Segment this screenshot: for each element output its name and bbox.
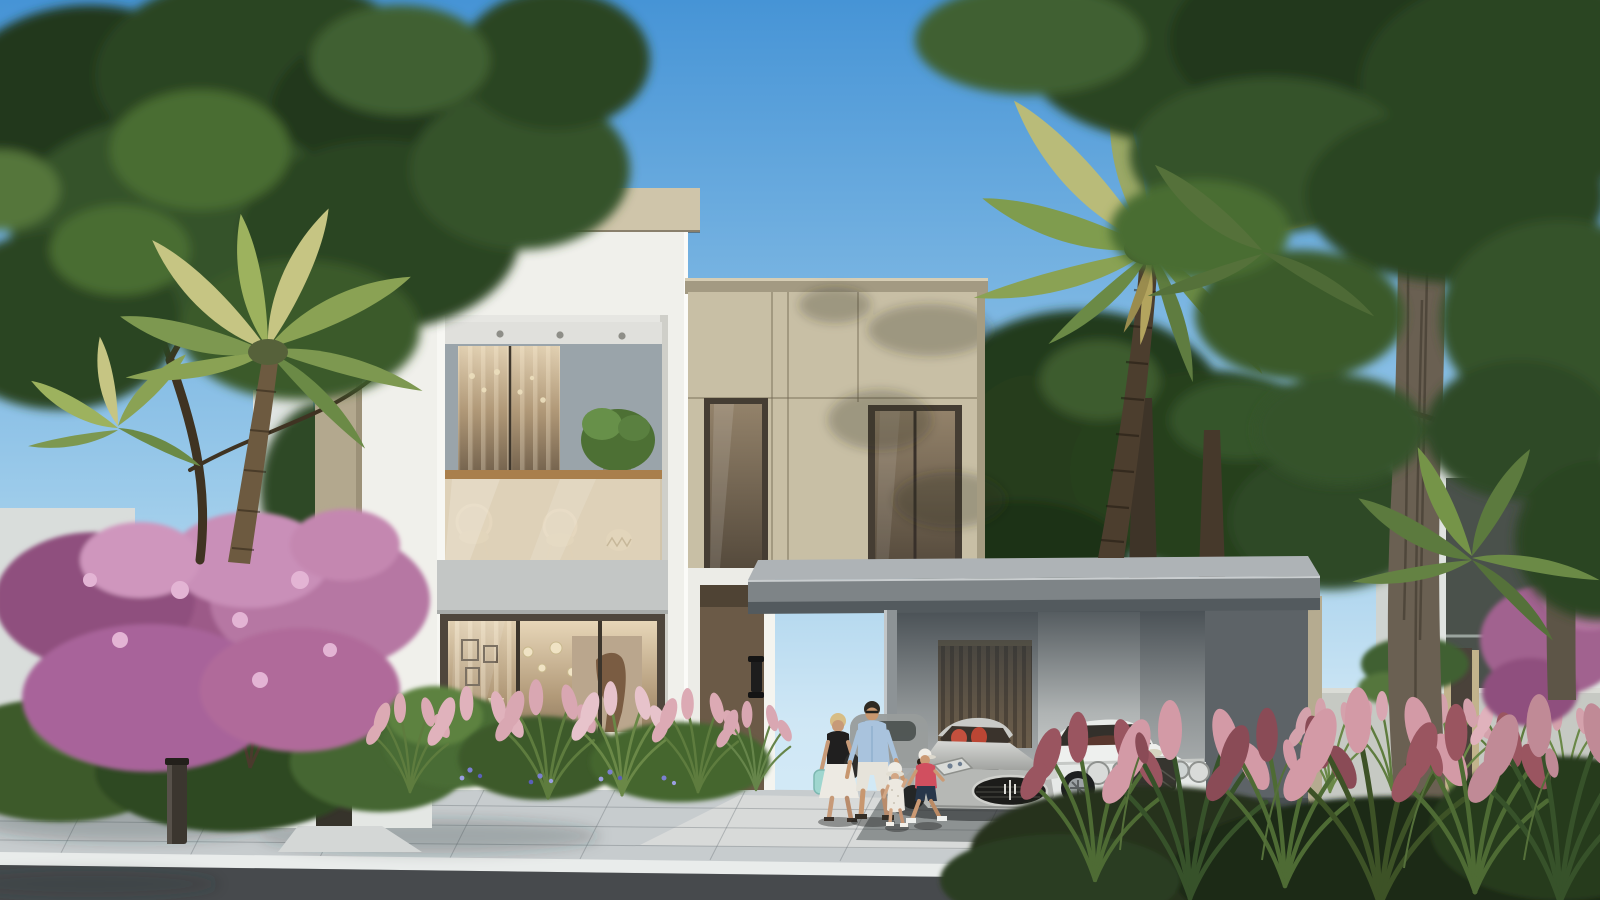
floral-dot [893, 802, 895, 804]
woman-leg [829, 798, 832, 818]
left-bougainvillea [0, 509, 430, 772]
bollard-highlight [167, 762, 172, 844]
woman-face [832, 720, 844, 732]
balcony [437, 322, 668, 614]
balcony-soffit [445, 322, 662, 344]
floral-dot [897, 795, 899, 797]
carport-roof-top [748, 556, 1320, 580]
man-leg [861, 791, 863, 815]
sandal [824, 817, 834, 821]
wing-window [704, 398, 768, 568]
headlight-lens [947, 763, 952, 768]
woman-skirt [819, 764, 859, 798]
headlight-lens [958, 762, 962, 766]
bollard-light [165, 758, 189, 844]
white-shoe [886, 822, 894, 826]
toddler-outfit [887, 779, 905, 813]
sandal [855, 814, 867, 819]
sneaker [937, 816, 947, 821]
wing-fascia-highlight [685, 278, 988, 281]
headlight-icon [1189, 762, 1209, 782]
person-shadow [914, 822, 942, 830]
parapet-shadow [437, 610, 668, 614]
wing-corner-shade [977, 292, 985, 568]
man-shirt [858, 720, 890, 769]
man-face [866, 708, 879, 721]
downlight-icon [618, 332, 625, 339]
white-shoe [900, 823, 908, 827]
downlight-icon [496, 330, 503, 337]
sneaker [906, 818, 916, 823]
floral-dot [891, 789, 893, 791]
toddler-leg [890, 810, 891, 823]
downlight-icon [556, 331, 563, 338]
bollard-cap [165, 758, 189, 765]
stone-wing [685, 278, 1006, 568]
balcony-parapet [437, 560, 668, 614]
architectural-render [0, 0, 1600, 900]
scene-canvas [0, 0, 1600, 900]
railing-wood-cap [445, 470, 662, 479]
